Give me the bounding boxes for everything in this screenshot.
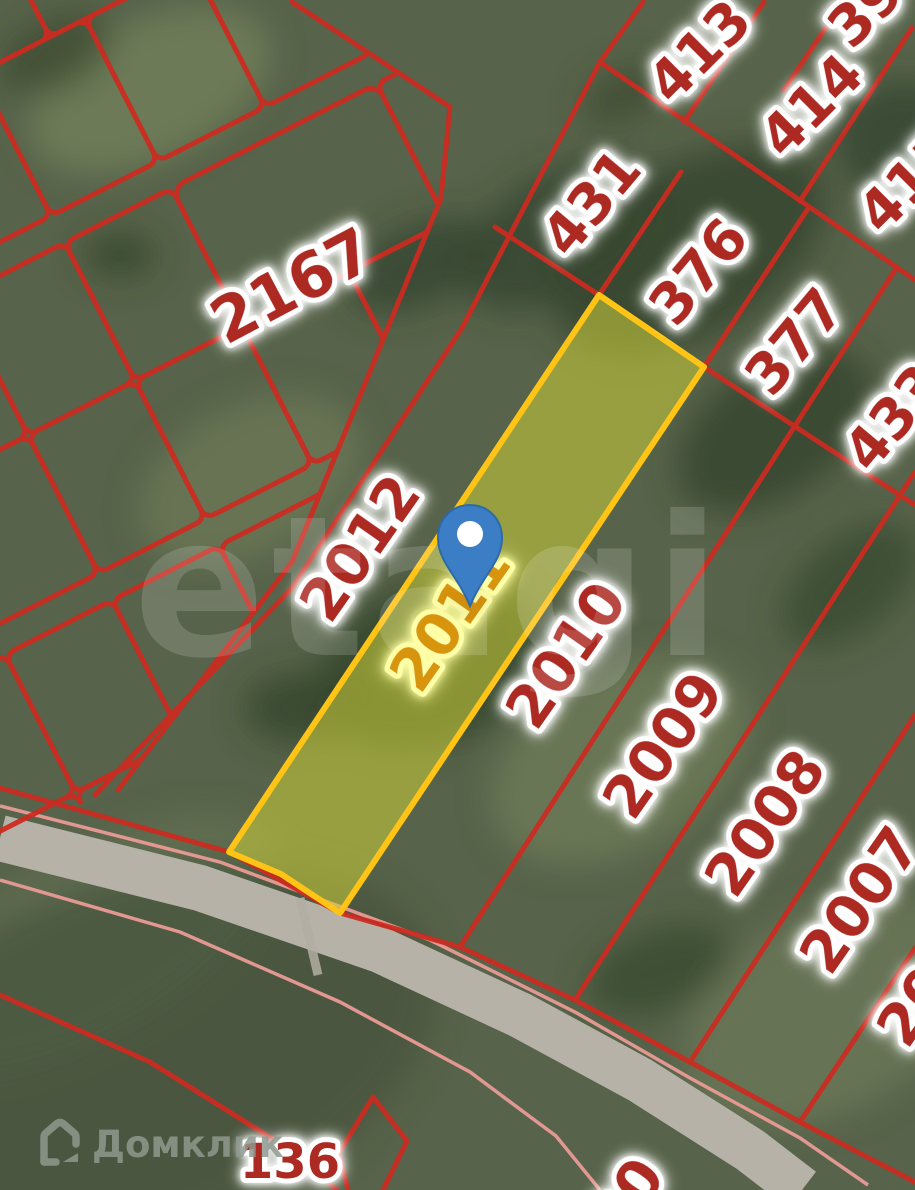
pin-hole bbox=[457, 521, 483, 547]
satellite-map: 2167 413 414 39 415 431 376 377 433 2012… bbox=[0, 0, 915, 1190]
brand-logo-text: Домклик bbox=[92, 1123, 284, 1166]
map-canvas[interactable]: 2167 413 414 39 415 431 376 377 433 2012… bbox=[0, 0, 915, 1190]
